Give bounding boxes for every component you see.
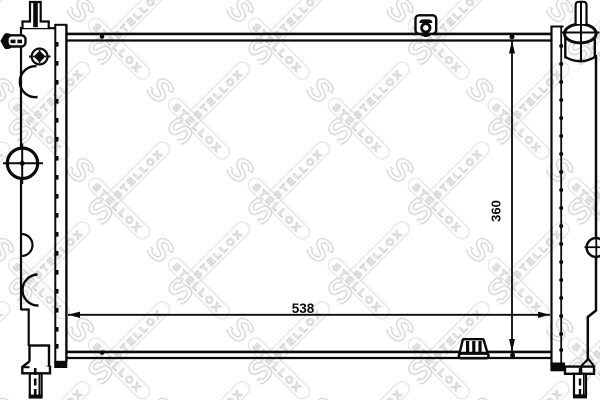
svg-text:360: 360: [489, 200, 504, 222]
svg-text:538: 538: [292, 301, 315, 316]
